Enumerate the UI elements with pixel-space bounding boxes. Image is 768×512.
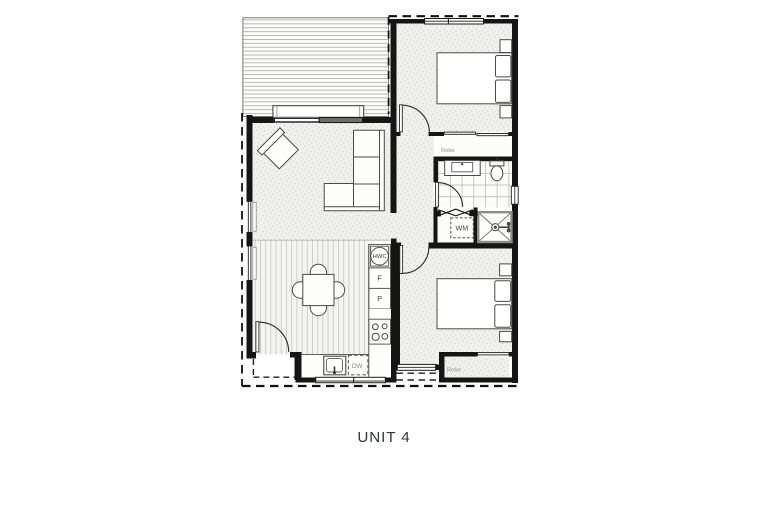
svg-text:HWC: HWC [373, 254, 387, 260]
svg-text:F: F [377, 274, 382, 283]
svg-text:WM: WM [456, 224, 469, 233]
svg-text:DW: DW [352, 363, 364, 370]
svg-text:P: P [377, 294, 382, 303]
svg-text:Robe: Robe [447, 367, 461, 373]
svg-text:Robe: Robe [441, 148, 455, 154]
